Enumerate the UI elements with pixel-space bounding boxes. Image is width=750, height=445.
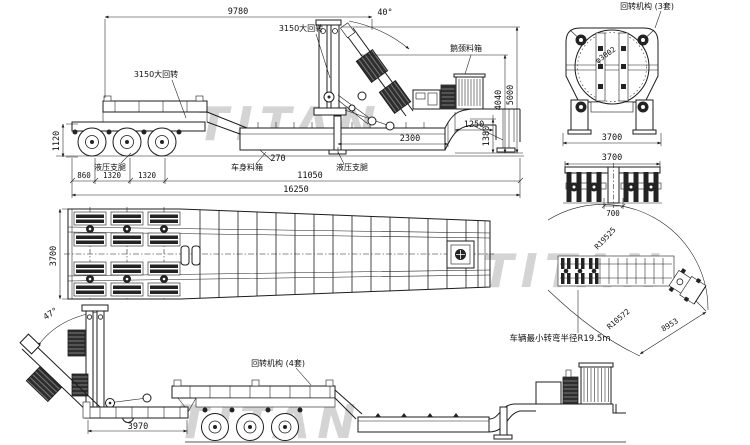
low-deck-front bbox=[335, 363, 626, 439]
dim-4040-text: 4040 bbox=[494, 90, 504, 110]
dim-2300-text: 2300 bbox=[400, 134, 420, 144]
dim-1250-text: 1250 bbox=[464, 120, 484, 130]
gooseneck-box-text: 鹅颈料箱 bbox=[450, 43, 482, 53]
body-box-label: 车身料箱 bbox=[231, 152, 266, 172]
dim-270-text: 270 bbox=[270, 154, 285, 164]
slew-upper-text: 3150大回转 bbox=[279, 23, 323, 33]
plan-end-box bbox=[447, 241, 474, 268]
slew-lower-text: 3150大回转 bbox=[134, 69, 178, 79]
plan-bogies bbox=[74, 207, 180, 301]
dim-row-axles: 860 1320 1320 11050 bbox=[70, 158, 523, 184]
body-box-text: 车身料箱 bbox=[231, 162, 263, 172]
leg-front-label: 液压支腿 bbox=[336, 152, 368, 172]
rear-bogie-wheels bbox=[72, 122, 205, 156]
mechanism-3-text: 回转机构 (3套) bbox=[620, 1, 674, 11]
leg-front-text: 液压支腿 bbox=[336, 162, 368, 172]
inner-radius-arc bbox=[548, 290, 640, 356]
dim-front-3700-text: 3700 bbox=[602, 133, 622, 143]
angle-47-text: 47° bbox=[42, 306, 60, 323]
mechanism-4-label: 回转机构 (4套) bbox=[251, 358, 311, 385]
turning-note-text: 车辆最小转弯半径R19.5m bbox=[509, 333, 610, 344]
dim-860-text: 860 bbox=[77, 171, 91, 180]
dim-270: 270 bbox=[260, 150, 286, 164]
mechanism-4-text: 回转机构 (4套) bbox=[251, 358, 305, 368]
gooseneck-box-label: 鹅颈料箱 bbox=[450, 43, 482, 74]
turning-trailer bbox=[558, 256, 707, 306]
dim-5000-text: 5000 bbox=[506, 85, 516, 105]
rear-platform bbox=[103, 96, 207, 122]
r-inner-text: R10572 bbox=[605, 307, 632, 331]
front-view: 回转机构 (3套) φ3002 3700 bbox=[563, 1, 674, 146]
engine-box bbox=[441, 85, 455, 109]
drawing-svg: TITAN TITAN TITAN bbox=[0, 0, 750, 445]
dim-9780-text: 9780 bbox=[228, 7, 248, 17]
angle-40: 40° bbox=[349, 8, 409, 49]
mechanism-3-label: 回转机构 (3套) bbox=[620, 1, 674, 28]
dim-3970: 3970 bbox=[88, 420, 187, 434]
engineering-drawing-canvas: TITAN TITAN TITAN bbox=[0, 0, 750, 445]
dim-1320a-text: 1320 bbox=[103, 171, 122, 180]
dim-1120-text: 1120 bbox=[52, 131, 62, 151]
dim-axle-3700: 3700 bbox=[565, 153, 660, 168]
dim-1250: 1250 bbox=[455, 112, 493, 133]
axle-view: 3700 700 bbox=[563, 153, 662, 218]
dim-11050-text: 11050 bbox=[297, 171, 323, 181]
dim-front-3700: 3700 bbox=[563, 133, 661, 146]
dim-3970-text: 3970 bbox=[128, 422, 148, 432]
dim-16250-text: 16250 bbox=[283, 185, 309, 195]
dim-axle-3700-text: 3700 bbox=[602, 153, 622, 163]
dim-plan-3700-text: 3700 bbox=[49, 246, 59, 266]
dim-1320b-text: 1320 bbox=[138, 171, 157, 180]
angle-40-text: 40° bbox=[377, 8, 392, 18]
dim-700-text: 700 bbox=[606, 209, 620, 218]
gooseneck-toolbox bbox=[456, 77, 483, 109]
plan-view: 3700 bbox=[49, 207, 494, 301]
